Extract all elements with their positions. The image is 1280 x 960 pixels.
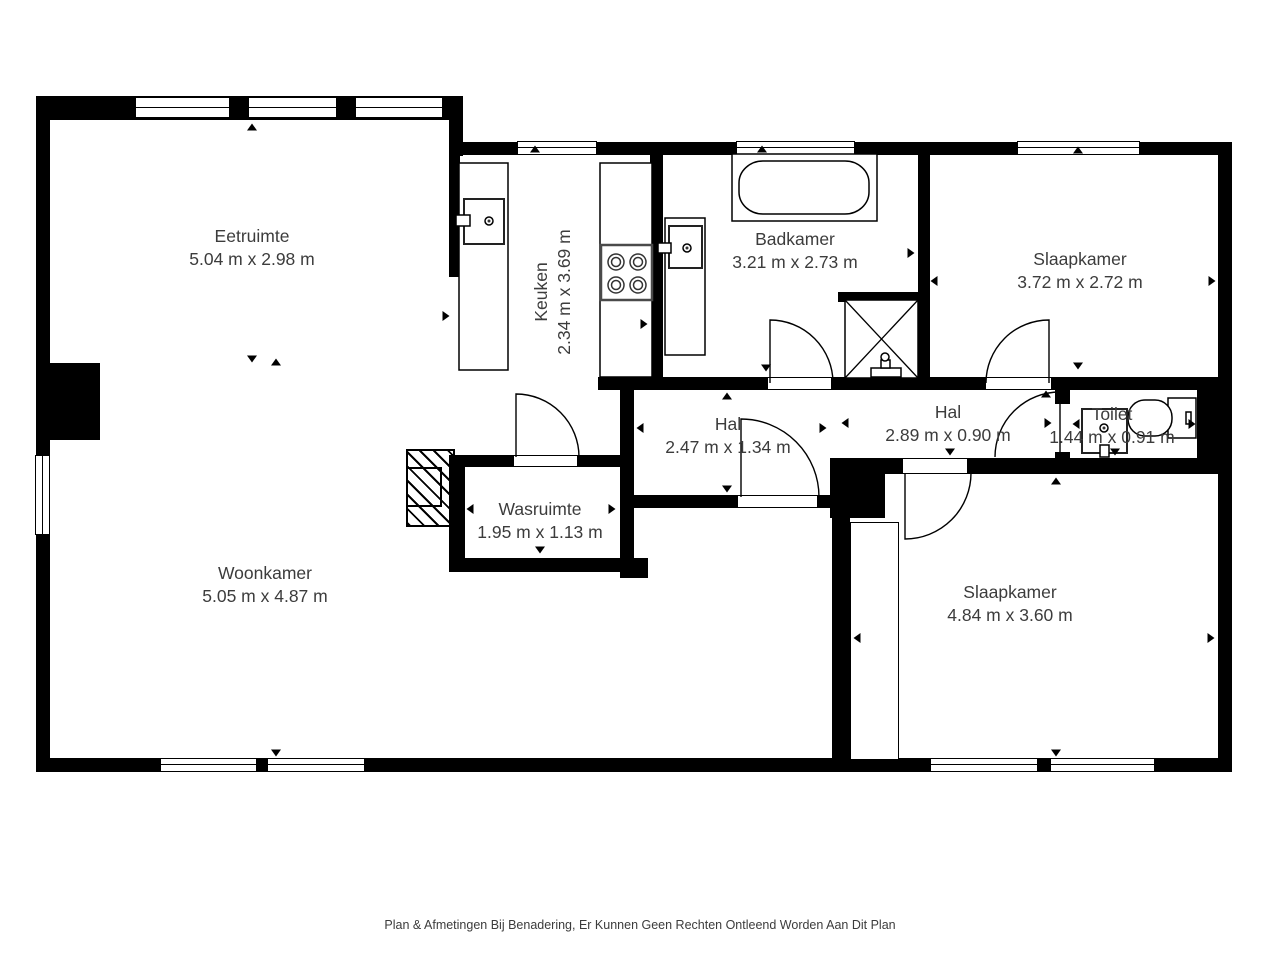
bathtub: [732, 154, 877, 221]
room-dimensions: 2.34 m x 3.69 m: [553, 229, 576, 354]
floor-plan: Eetruimte 5.04 m x 2.98 m Keuken 2.34 m …: [0, 0, 1280, 960]
room-dimensions: 3.21 m x 2.73 m: [732, 251, 857, 274]
room-label-eetruimte: Eetruimte 5.04 m x 2.98 m: [189, 225, 314, 271]
room-name: Wasruimte: [477, 498, 602, 521]
dimension-arrow: [247, 124, 257, 131]
room-label-slaapkamer-1: Slaapkamer 3.72 m x 2.72 m: [1017, 248, 1142, 294]
room-label-hal-1: Hal 2.47 m x 1.34 m: [665, 413, 790, 459]
room-name: Hal: [885, 401, 1010, 424]
dimension-arrow: [842, 418, 849, 428]
room-name: Eetruimte: [189, 225, 314, 248]
room-name: Hal: [665, 413, 790, 436]
dimension-arrow: [1051, 478, 1061, 485]
shower: [845, 300, 918, 378]
room-dimensions: 5.04 m x 2.98 m: [189, 248, 314, 271]
dimension-arrow: [467, 504, 474, 514]
kitchen-counter: [456, 163, 508, 370]
disclaimer-text: Plan & Afmetingen Bij Benadering, Er Kun…: [0, 918, 1280, 932]
room-label-wasruimte: Wasruimte 1.95 m x 1.13 m: [477, 498, 602, 544]
door-wasruimte: [516, 394, 579, 457]
room-name: Slaapkamer: [947, 581, 1072, 604]
room-dimensions: 3.72 m x 2.72 m: [1017, 271, 1142, 294]
dimension-arrow: [535, 547, 545, 554]
room-dimensions: 2.47 m x 1.34 m: [665, 436, 790, 459]
dimension-arrow: [1051, 750, 1061, 757]
dimension-arrow: [945, 449, 955, 456]
room-label-slaapkamer-2: Slaapkamer 4.84 m x 3.60 m: [947, 581, 1072, 627]
room-label-woonkamer: Woonkamer 5.05 m x 4.87 m: [202, 562, 327, 608]
room-label-badkamer: Badkamer 3.21 m x 2.73 m: [732, 228, 857, 274]
room-name: Keuken: [530, 229, 553, 354]
dimension-arrow: [1073, 363, 1083, 370]
dimension-arrow: [1073, 147, 1083, 154]
fixtures-overlay: [0, 0, 1280, 960]
dimension-arrow: [271, 359, 281, 366]
dimension-arrow: [931, 276, 938, 286]
dimension-arrow: [722, 486, 732, 493]
dimension-arrow: [820, 423, 827, 433]
room-name: Toilet: [1049, 403, 1174, 426]
room-dimensions: 1.95 m x 1.13 m: [477, 521, 602, 544]
room-label-keuken: Keuken 2.34 m x 3.69 m: [530, 229, 576, 354]
dimension-arrow: [757, 146, 767, 153]
room-dimensions: 5.05 m x 4.87 m: [202, 585, 327, 608]
door-badkamer: [770, 320, 833, 383]
room-name: Badkamer: [732, 228, 857, 251]
room-label-hal-2: Hal 2.89 m x 0.90 m: [885, 401, 1010, 447]
door-slaapkamer-1: [986, 320, 1049, 383]
stove: [600, 163, 652, 377]
room-name: Woonkamer: [202, 562, 327, 585]
dimension-arrow: [1208, 633, 1215, 643]
dimension-arrow: [609, 504, 616, 514]
room-dimensions: 1.44 m x 0.91 m: [1049, 426, 1174, 449]
room-name: Slaapkamer: [1017, 248, 1142, 271]
dimension-arrow: [1209, 276, 1216, 286]
dimension-arrow: [247, 356, 257, 363]
dimension-arrow: [530, 146, 540, 153]
bathroom-sink: [658, 218, 705, 355]
dimension-arrow: [271, 750, 281, 757]
dimension-arrow: [42, 311, 49, 321]
room-dimensions: 4.84 m x 3.60 m: [947, 604, 1072, 627]
dimension-arrow: [722, 393, 732, 400]
dimension-arrow: [854, 633, 861, 643]
room-dimensions: 2.89 m x 0.90 m: [885, 424, 1010, 447]
dimension-arrow: [443, 311, 450, 321]
dimension-arrow: [908, 248, 915, 258]
door-slaapkamer-2: [905, 473, 971, 539]
dimension-arrow: [637, 423, 644, 433]
room-label-toilet: Toilet 1.44 m x 0.91 m: [1049, 403, 1174, 449]
